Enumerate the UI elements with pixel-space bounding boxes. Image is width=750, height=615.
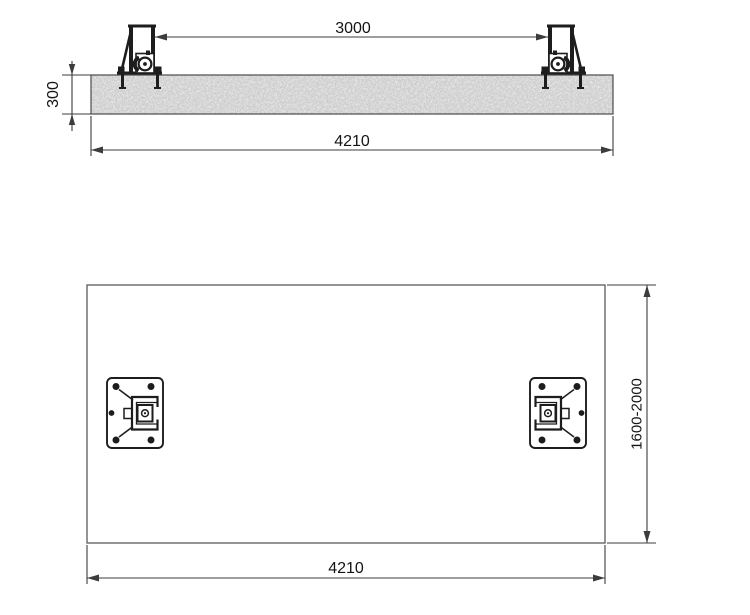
- dim-post-spacing: 3000: [155, 20, 548, 41]
- platform-outline: [87, 285, 605, 543]
- concrete-slab: [91, 75, 613, 114]
- dim-foundation-depth: 300: [45, 61, 91, 131]
- dim-width-range-label: 1600-2000: [629, 378, 646, 450]
- dim-foundation-length: 4210: [91, 116, 613, 156]
- drawing-canvas: 3000 300 4210: [0, 0, 750, 615]
- elevation-view: 3000 300 4210: [45, 20, 613, 156]
- technical-drawing: 3000 300 4210: [0, 0, 750, 615]
- right-base-plate: [530, 378, 586, 448]
- dim-foundation-length-label: 4210: [334, 133, 370, 150]
- dim-post-spacing-label: 3000: [335, 20, 371, 37]
- dim-overall-length: 4210: [87, 545, 605, 584]
- dim-width-range: 1600-2000: [607, 285, 656, 543]
- left-base-plate: [107, 378, 163, 448]
- dim-overall-length-label: 4210: [328, 560, 364, 577]
- dim-foundation-depth-label: 300: [45, 81, 62, 108]
- plan-view: 1600-2000 4210: [87, 285, 656, 584]
